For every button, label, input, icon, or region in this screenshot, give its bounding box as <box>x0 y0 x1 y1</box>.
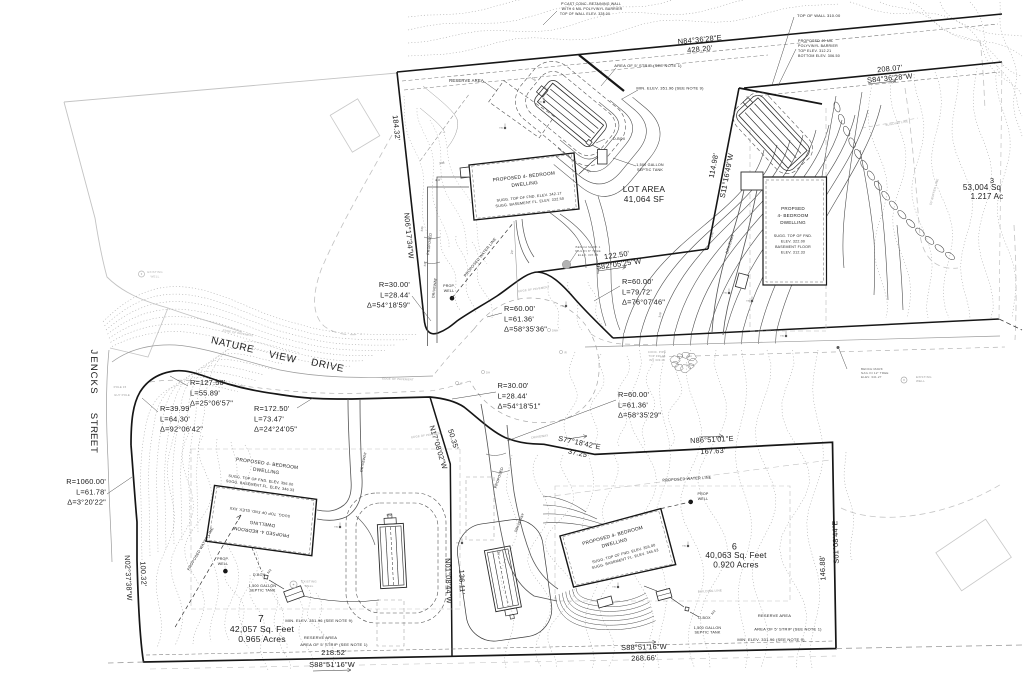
svg-text:100.32': 100.32' <box>138 561 148 587</box>
svg-text:L=64.30': L=64.30' <box>160 414 190 423</box>
svg-text:Δ=25°06'57": Δ=25°06'57" <box>190 399 233 408</box>
svg-text:TH: TH <box>780 335 784 338</box>
svg-text:IR: IR <box>564 351 567 355</box>
svg-text:Δ=3°20'22": Δ=3°20'22" <box>67 498 106 507</box>
svg-text:WITH 6 MIL POLYVINYL BARRIER: WITH 6 MIL POLYVINYL BARRIER <box>562 7 623 11</box>
svg-text:Δ=24°24'05": Δ=24°24'05" <box>254 425 297 434</box>
svg-text:1.217 Ac: 1.217 Ac <box>971 192 1004 201</box>
svg-text:218.52': 218.52' <box>321 648 347 657</box>
svg-text:TH: TH <box>499 127 503 130</box>
svg-text:ELEV. 337.65: ELEV. 337.65 <box>578 253 599 257</box>
svg-text:MIN. ELEV. 331.96 (SEE NOTE 9): MIN. ELEV. 331.96 (SEE NOTE 9) <box>737 637 805 642</box>
svg-text:WELL: WELL <box>151 275 160 279</box>
svg-text:TH: TH <box>560 305 564 308</box>
svg-text:T: T <box>88 447 99 453</box>
svg-text:C: C <box>88 372 99 379</box>
svg-text:L=79.72': L=79.72' <box>622 287 652 296</box>
svg-text:TH: TH <box>723 292 727 295</box>
svg-text:Δ=54°18'51": Δ=54°18'51" <box>498 402 541 411</box>
svg-text:RESERVE AREA: RESERVE AREA <box>758 613 791 618</box>
svg-text:E: E <box>88 433 99 440</box>
svg-text:L=28.44': L=28.44' <box>380 290 410 299</box>
svg-text:SEPTIC TANK: SEPTIC TANK <box>249 589 275 593</box>
svg-text:WELL: WELL <box>305 584 314 588</box>
svg-text:WELL: WELL <box>444 289 455 293</box>
svg-text:AREA OF 5' STRIP (SEE NOTE 1): AREA OF 5' STRIP (SEE NOTE 1) <box>614 63 682 68</box>
svg-text:53,004 Sq: 53,004 Sq <box>963 183 1001 192</box>
svg-text:Δ=54°18'59": Δ=54°18'59" <box>367 301 410 310</box>
svg-text:TH: TH <box>334 526 338 529</box>
svg-text:336: 336 <box>439 161 445 166</box>
svg-text:20': 20' <box>510 249 514 254</box>
svg-text:J: J <box>88 350 99 355</box>
svg-text:E: E <box>88 356 99 363</box>
svg-text:INV 333.25: INV 333.25 <box>649 358 665 362</box>
svg-text:TH: TH <box>746 300 750 303</box>
svg-text:TOP OF WALL 310.00: TOP OF WALL 310.00 <box>797 13 841 18</box>
svg-text:352: 352 <box>386 513 392 517</box>
svg-text:L=55.89': L=55.89' <box>190 388 220 397</box>
svg-text:S: S <box>88 413 99 420</box>
svg-text:R=30.00': R=30.00' <box>498 381 530 390</box>
svg-text:TH: TH <box>612 586 616 589</box>
svg-text:L=61.36': L=61.36' <box>618 400 648 409</box>
svg-text:6: 6 <box>732 542 737 552</box>
svg-text:EXISTING: EXISTING <box>301 580 317 584</box>
svg-text:TH: TH <box>456 542 460 545</box>
svg-text:PROPSED: PROPSED <box>781 206 805 211</box>
svg-text:POLYVINYL BARRIER: POLYVINYL BARRIER <box>798 44 838 48</box>
svg-text:0.965 Acres: 0.965 Acres <box>238 634 286 644</box>
svg-text:Δ=58°35'36": Δ=58°35'36" <box>504 325 547 334</box>
svg-text:S01°08'44"E: S01°08'44"E <box>830 520 841 563</box>
svg-text:IP: IP <box>460 382 463 386</box>
svg-text:340: 340 <box>420 226 424 232</box>
svg-text:BOTTOM ELEV. 306.50: BOTTOM ELEV. 306.50 <box>798 54 840 58</box>
svg-text:AREA OF 5' STRIP (SEE NOTE 1): AREA OF 5' STRIP (SEE NOTE 1) <box>754 627 822 632</box>
svg-text:TH: TH <box>538 101 542 104</box>
svg-text:BASEMENT FLOOR: BASEMENT FLOOR <box>775 245 811 249</box>
svg-text:N01°08'44"W: N01°08'44"W <box>443 558 454 604</box>
svg-text:R: R <box>88 426 99 433</box>
svg-text:MIN. ELEV. 351.96 (SEE NOTE 9): MIN. ELEV. 351.96 (SEE NOTE 9) <box>636 86 704 91</box>
svg-text:TH: TH <box>682 545 686 548</box>
svg-text:1,500 GALLON: 1,500 GALLON <box>636 163 664 167</box>
svg-text:PROP: PROP <box>698 492 709 496</box>
svg-text:AREA OF 5' STRIP (SEE NOTE 1): AREA OF 5' STRIP (SEE NOTE 1) <box>300 642 368 647</box>
svg-text:R=30.00': R=30.00' <box>379 280 411 289</box>
svg-text:R=1060.00': R=1060.00' <box>66 477 106 486</box>
svg-text:K: K <box>88 380 99 387</box>
svg-text:0.920 Acres: 0.920 Acres <box>713 561 758 570</box>
svg-text:R=127.50': R=127.50' <box>190 378 226 387</box>
svg-text:MIN. ELEV. 351.96 (SEE NOTE 9): MIN. ELEV. 351.96 (SEE NOTE 9) <box>285 618 353 623</box>
svg-text:LOT AREA: LOT AREA <box>623 184 666 194</box>
svg-text:P'CAST CONC. RETAINING WALL: P'CAST CONC. RETAINING WALL <box>561 2 621 6</box>
svg-text:T: T <box>88 420 99 426</box>
svg-text:RESERVE AREA: RESERVE AREA <box>304 635 337 640</box>
svg-text:ELEV. 341.27: ELEV. 341.27 <box>861 375 882 379</box>
svg-text:TOP OF WALL ELEV. 328.00: TOP OF WALL ELEV. 328.00 <box>560 12 610 16</box>
svg-text:S: S <box>88 387 99 394</box>
svg-text:D-BOX: D-BOX <box>253 573 266 577</box>
svg-text:WELL: WELL <box>698 497 709 501</box>
svg-text:L=73.47': L=73.47' <box>254 414 284 423</box>
svg-text:ELEV. 312.33: ELEV. 312.33 <box>781 251 805 255</box>
svg-text:Δ=76°07'46": Δ=76°07'46" <box>622 298 665 307</box>
svg-text:EXISTING: EXISTING <box>147 270 163 274</box>
svg-text:L=28.44': L=28.44' <box>498 391 528 400</box>
svg-text:1,500 GALLON: 1,500 GALLON <box>694 626 722 630</box>
svg-text:SEPTIC TANK: SEPTIC TANK <box>637 168 663 172</box>
svg-text:R=39.99': R=39.99' <box>160 404 192 413</box>
svg-text:L=61.78': L=61.78' <box>76 487 106 496</box>
svg-text:R=60.00': R=60.00' <box>504 304 536 313</box>
svg-text:342: 342 <box>423 261 427 267</box>
svg-text:167.63': 167.63' <box>700 446 726 456</box>
svg-text:PROP.: PROP. <box>217 557 229 561</box>
svg-text:RESERVE AREA: RESERVE AREA <box>449 78 484 83</box>
svg-text:DMH: DMH <box>552 329 559 333</box>
svg-text:D-BOX: D-BOX <box>698 616 711 620</box>
svg-text:N: N <box>88 364 99 371</box>
svg-text:146.88': 146.88' <box>818 555 828 581</box>
svg-text:136.11': 136.11' <box>457 569 467 594</box>
svg-text:WELL: WELL <box>916 379 925 383</box>
svg-text:L=61.36': L=61.36' <box>504 314 534 323</box>
svg-text:R=60.00': R=60.00' <box>622 277 654 286</box>
svg-text:4.3': 4.3' <box>435 178 441 183</box>
svg-text:1,500 GALLON: 1,500 GALLON <box>249 584 277 588</box>
svg-text:R=172.50': R=172.50' <box>254 404 290 413</box>
svg-text:E: E <box>88 440 99 447</box>
svg-text:S88°51'16"W: S88°51'16"W <box>621 642 667 652</box>
svg-text:R=60.00': R=60.00' <box>618 390 650 399</box>
svg-text:Δ=58°35'29": Δ=58°35'29" <box>618 411 661 420</box>
svg-text:ELEV. 322.00: ELEV. 322.00 <box>781 240 805 244</box>
svg-text:DWELLING: DWELLING <box>780 220 806 225</box>
svg-text:4- BEDROOM: 4- BEDROOM <box>777 213 808 218</box>
svg-text:268.66': 268.66' <box>631 653 657 663</box>
svg-text:PROP.: PROP. <box>443 284 455 288</box>
svg-text:Δ=92°06'42": Δ=92°06'42" <box>160 425 203 434</box>
svg-text:WELL: WELL <box>218 562 229 566</box>
svg-text:GUY POLE: GUY POLE <box>114 393 130 397</box>
svg-text:SEPTIC TANK: SEPTIC TANK <box>694 631 720 635</box>
svg-text:POLE 15: POLE 15 <box>114 385 127 389</box>
svg-text:SUGG. TOP OF FND.: SUGG. TOP OF FND. <box>774 234 813 238</box>
svg-text:TOP ELEV. 312.21: TOP ELEV. 312.21 <box>798 49 831 53</box>
svg-text:41,064 SF: 41,064 SF <box>624 194 664 204</box>
svg-text:D-BOX: D-BOX <box>613 137 626 141</box>
svg-text:PROPOSED 40 MIL: PROPOSED 40 MIL <box>798 39 833 43</box>
svg-text:DH: DH <box>486 371 490 375</box>
svg-text:42,057 Sq. Feet: 42,057 Sq. Feet <box>230 624 295 634</box>
svg-text:S88°51'16"W: S88°51'16"W <box>309 660 355 669</box>
svg-text:40,063 Sq. Feet: 40,063 Sq. Feet <box>705 551 767 560</box>
